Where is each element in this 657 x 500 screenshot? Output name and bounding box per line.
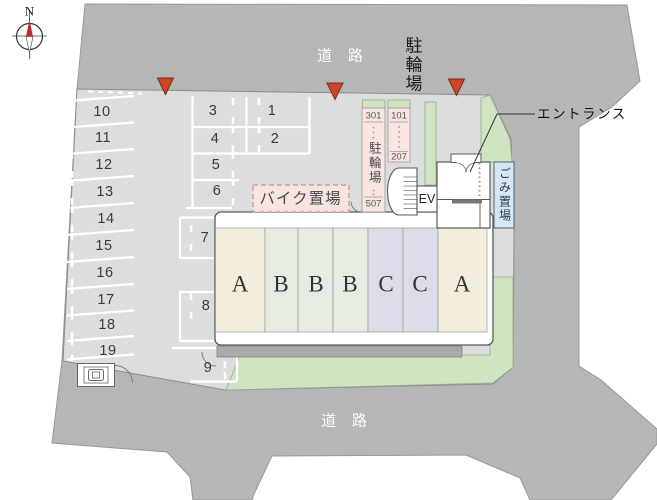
parking-stall-number: 12 — [95, 158, 112, 173]
parking-stall-number: 4 — [211, 132, 220, 147]
elevator-label: EV — [419, 193, 436, 206]
compass-needle-north — [26, 20, 33, 37]
garbage-area-label: ごみ置場 — [499, 167, 511, 223]
road-label-bottom: 道 路 — [321, 415, 373, 430]
mailbox-counter — [452, 200, 482, 204]
parking-stall-number: 18 — [98, 318, 115, 333]
unit-label: B — [273, 273, 288, 296]
unit-label: C — [378, 273, 393, 296]
unit-label: C — [412, 273, 427, 296]
bike-col-left-bottom-label: 507 — [366, 199, 382, 209]
parking-stall-number: 11 — [95, 131, 111, 146]
parking-stall-number: 7 — [201, 231, 210, 246]
parking-stall-number: 9 — [204, 361, 213, 376]
eave-strip — [217, 346, 462, 357]
parking-stall-number: 1 — [268, 104, 277, 119]
unit-label: A — [232, 273, 249, 296]
parking-stall-number: 6 — [213, 184, 222, 199]
compass-needle-south — [26, 37, 33, 54]
compass-north-label: N — [25, 5, 34, 18]
bike-col-right-bottom-label: 207 — [391, 152, 407, 162]
parking-stall-number: 17 — [97, 293, 114, 308]
bike-col-left-top-label: 301 — [366, 111, 382, 121]
staircase — [388, 168, 418, 215]
bike-col-left-name-label: 駐輪場 — [367, 141, 380, 185]
unit-label: A — [454, 273, 471, 296]
entrance-label: エントランス — [537, 107, 627, 121]
road-label-top: 道 路 — [317, 50, 369, 65]
parking-stall-number: 8 — [202, 299, 211, 314]
unit-label: B — [308, 273, 323, 296]
entrance-hall — [437, 154, 490, 228]
bike-col-right-top-label: 101 — [391, 111, 407, 121]
parking-stall-number: 5 — [212, 158, 221, 173]
parking-stall-number: 13 — [96, 185, 113, 200]
parking-stall-number: 19 — [99, 344, 116, 359]
site-plan: N 道 路 道 路 駐輪場 バイク置場 301 駐輪場 507 101 207 … — [0, 0, 657, 500]
bicycle-area-road-label: 駐輪場 — [404, 37, 421, 94]
parking-stall-number: 10 — [93, 105, 110, 120]
parking-stall-number: 15 — [95, 239, 112, 254]
parking-stall-number: 14 — [97, 212, 114, 227]
parking-stall-number: 3 — [209, 104, 218, 119]
parking-stall-number: 2 — [271, 132, 280, 147]
unit-label: B — [342, 273, 357, 296]
bike-storage-label: バイク置場 — [259, 191, 341, 207]
parking-stall-number: 16 — [96, 266, 113, 281]
